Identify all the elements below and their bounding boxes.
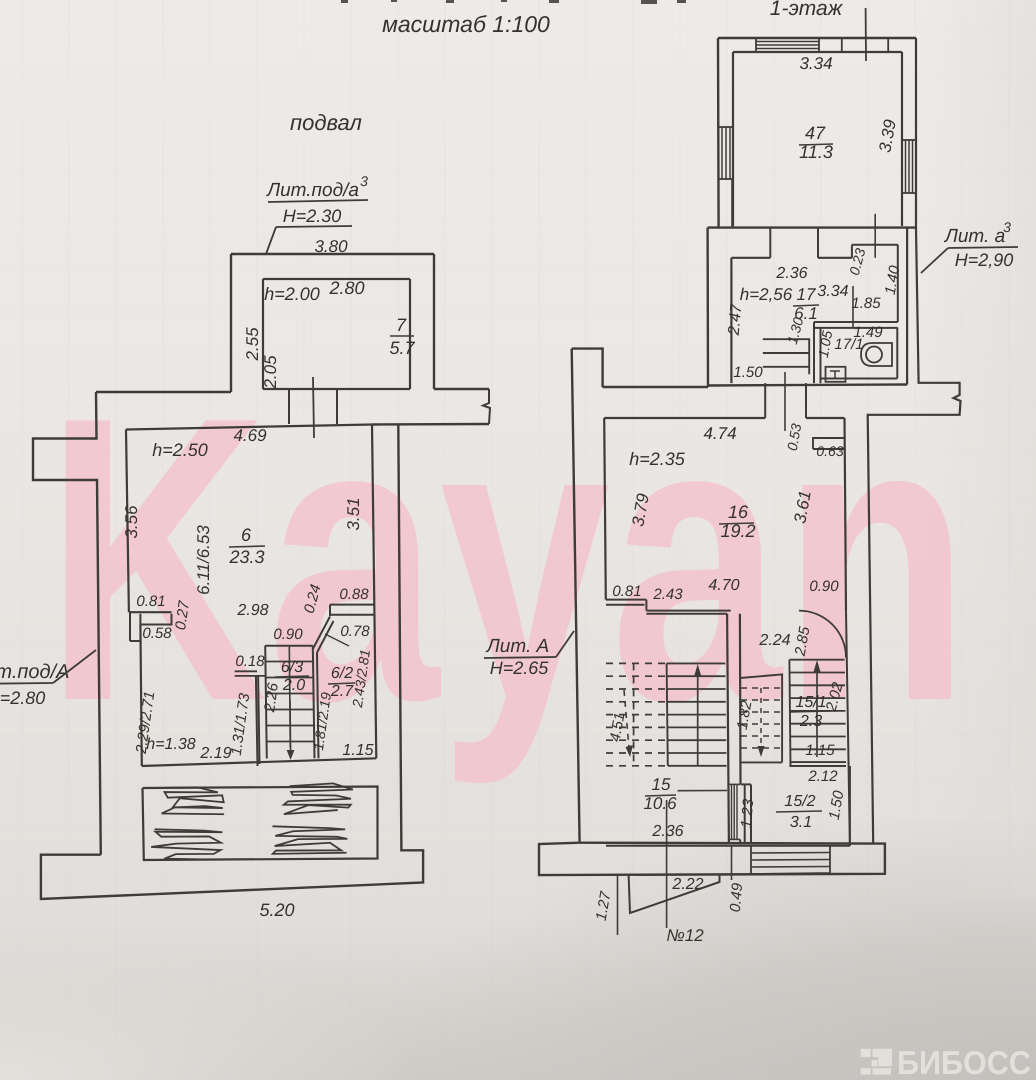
svg-text:2.47: 2.47 — [726, 302, 746, 337]
svg-text:0.63: 0.63 — [816, 443, 843, 459]
svg-text:подвал: подвал — [290, 110, 362, 135]
svg-text:h=2.50: h=2.50 — [152, 440, 208, 460]
svg-text:Лит. А: Лит. А — [485, 636, 549, 657]
svg-text:4.74: 4.74 — [703, 424, 736, 443]
svg-text:4.70: 4.70 — [708, 577, 739, 594]
svg-text:6: 6 — [241, 525, 252, 545]
svg-text:15/2: 15/2 — [784, 793, 815, 810]
svg-text:h=2,56: h=2,56 — [740, 285, 793, 304]
svg-text:2.22: 2.22 — [671, 876, 703, 893]
svg-text:6/3: 6/3 — [281, 659, 303, 676]
svg-text:0.58: 0.58 — [142, 625, 172, 642]
svg-text:17/1: 17/1 — [834, 336, 863, 353]
svg-text:Kayan: Kayan — [45, 332, 970, 788]
svg-text:БИБОСС: БИБОСС — [897, 1044, 1031, 1080]
svg-text:6.11/6.53: 6.11/6.53 — [194, 525, 213, 595]
svg-text:0.49: 0.49 — [727, 882, 747, 913]
svg-text:15: 15 — [652, 775, 671, 794]
svg-text:h=2.35: h=2.35 — [629, 449, 686, 469]
svg-text:47: 47 — [805, 123, 826, 143]
svg-text:3.56: 3.56 — [122, 505, 141, 539]
svg-text:Н=2,90: Н=2,90 — [955, 250, 1014, 270]
svg-text:5.20: 5.20 — [259, 900, 294, 920]
svg-text:2.80: 2.80 — [328, 278, 364, 298]
svg-text:1-этаж: 1-этаж — [770, 0, 844, 20]
svg-text:23.3: 23.3 — [228, 547, 264, 567]
svg-text:1.85: 1.85 — [851, 295, 881, 312]
svg-text:2.05: 2.05 — [261, 355, 280, 390]
svg-text:2.12: 2.12 — [807, 768, 838, 785]
svg-text:2.55: 2.55 — [243, 327, 262, 362]
svg-text:2.36: 2.36 — [775, 265, 807, 282]
svg-text:0.78: 0.78 — [340, 623, 370, 640]
svg-text:Лит. а: Лит. а — [943, 226, 1005, 247]
svg-text:3: 3 — [360, 173, 368, 189]
svg-text:1.15: 1.15 — [342, 742, 373, 759]
svg-text:19.2: 19.2 — [720, 521, 755, 541]
svg-text:0.81: 0.81 — [612, 583, 641, 600]
svg-text:Н=2.65: Н=2.65 — [490, 658, 550, 678]
svg-text:3.51: 3.51 — [344, 497, 363, 530]
svg-text:2.24: 2.24 — [758, 632, 790, 649]
svg-text:3.34: 3.34 — [799, 54, 832, 73]
svg-text:Н=2.80: Н=2.80 — [0, 688, 45, 708]
svg-text:3: 3 — [1003, 219, 1011, 235]
svg-text:1.23: 1.23 — [738, 798, 758, 829]
svg-text:17: 17 — [797, 285, 816, 304]
svg-text:0.18: 0.18 — [235, 653, 265, 670]
svg-text:2.19: 2.19 — [199, 745, 231, 762]
svg-text:1.50: 1.50 — [733, 364, 763, 381]
svg-text:7: 7 — [396, 315, 407, 335]
svg-text:4.69: 4.69 — [233, 426, 267, 445]
svg-text:0.90: 0.90 — [273, 626, 303, 643]
svg-text:10.6: 10.6 — [643, 794, 677, 813]
svg-text:1.15: 1.15 — [805, 742, 835, 759]
svg-text:6/2: 6/2 — [331, 665, 353, 682]
svg-text:3.1: 3.1 — [790, 814, 812, 831]
svg-text:Лит.под/а: Лит.под/а — [265, 180, 359, 201]
svg-text:Н=2.30: Н=2.30 — [283, 206, 342, 226]
svg-text:2.43: 2.43 — [652, 586, 683, 603]
svg-text:h=2.00: h=2.00 — [264, 284, 320, 304]
svg-text:масштаб 1:100: масштаб 1:100 — [382, 11, 550, 37]
svg-text:№12: №12 — [666, 926, 704, 945]
svg-text:0.90: 0.90 — [809, 578, 839, 595]
svg-text:16: 16 — [728, 502, 749, 522]
svg-text:0.81: 0.81 — [136, 593, 165, 610]
svg-text:0.88: 0.88 — [339, 586, 369, 603]
svg-text:h=1.38: h=1.38 — [146, 736, 195, 753]
svg-text:3.34: 3.34 — [817, 283, 848, 300]
svg-text:Лит.под/А: Лит.под/А — [0, 661, 69, 683]
svg-text:2.0: 2.0 — [282, 677, 305, 694]
svg-text:2.36: 2.36 — [651, 823, 683, 840]
svg-text:5.7: 5.7 — [389, 338, 415, 358]
svg-text:11.3: 11.3 — [799, 142, 833, 162]
svg-text:2.3: 2.3 — [799, 713, 822, 730]
svg-text:2.98: 2.98 — [236, 602, 268, 619]
